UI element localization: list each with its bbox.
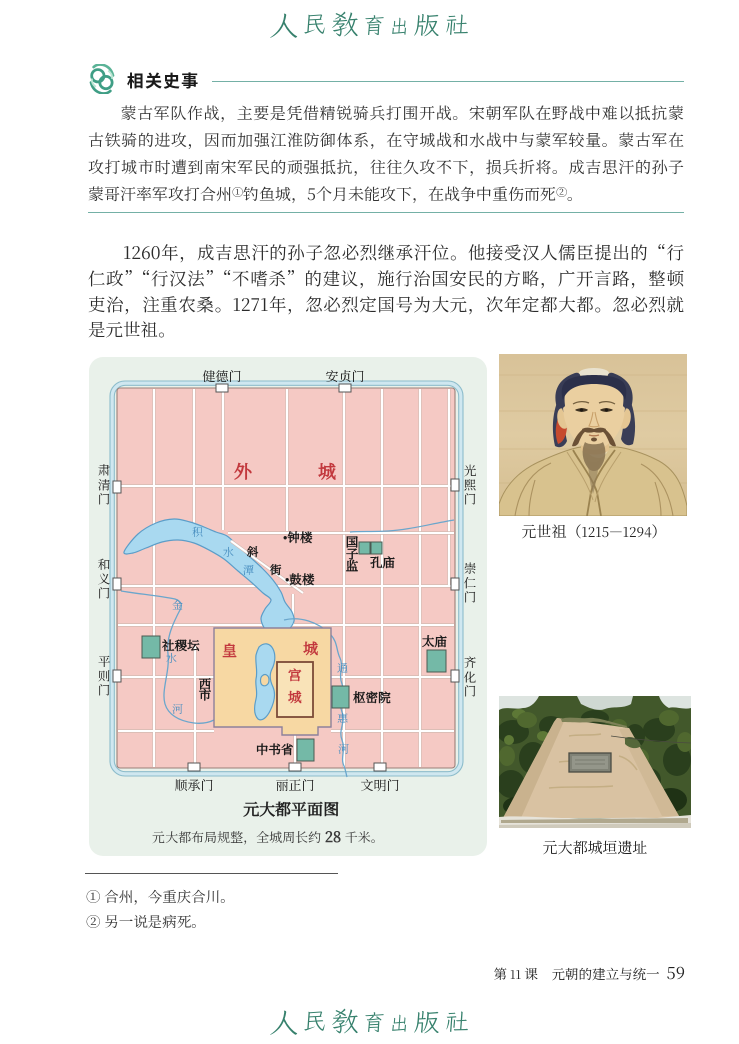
svg-text:健德门: 健德门 <box>202 366 241 385</box>
svg-text:河: 河 <box>338 741 349 757</box>
svg-text:城: 城 <box>288 686 302 706</box>
svg-text:积: 积 <box>192 524 203 540</box>
svg-text:通: 通 <box>337 660 348 676</box>
svg-text:和义门: 和义门 <box>95 557 113 601</box>
svg-text:河: 河 <box>172 701 183 717</box>
svg-text:顺承门: 顺承门 <box>174 775 213 794</box>
svg-text:皇: 皇 <box>222 640 237 661</box>
svg-text:平则门: 平则门 <box>95 654 113 698</box>
svg-text:中书省: 中书省 <box>256 740 294 758</box>
svg-text:文明门: 文明门 <box>360 775 399 794</box>
svg-text:水: 水 <box>166 650 177 666</box>
svg-text:齐化门: 齐化门 <box>461 655 479 699</box>
svg-text:光熙门: 光熙门 <box>461 463 479 507</box>
svg-text:宫: 宫 <box>288 664 302 684</box>
svg-text:水: 水 <box>223 544 234 560</box>
svg-text:西市: 西市 <box>196 677 214 702</box>
svg-text:丽正门: 丽正门 <box>275 775 314 794</box>
svg-text:斜: 斜 <box>246 544 259 560</box>
svg-text:国子监: 国子监 <box>343 535 361 573</box>
svg-text:外: 外 <box>234 458 252 484</box>
svg-text:金: 金 <box>172 597 183 613</box>
svg-text:崇仁门: 崇仁门 <box>461 561 479 605</box>
svg-text:惠: 惠 <box>337 710 348 726</box>
svg-text:城: 城 <box>302 638 318 659</box>
svg-text:太庙: 太庙 <box>422 632 448 650</box>
svg-text:潭: 潭 <box>243 562 254 578</box>
svg-text:街: 街 <box>270 562 282 578</box>
svg-text:安贞门: 安贞门 <box>325 366 364 385</box>
svg-text:肃清门: 肃清门 <box>95 463 113 507</box>
svg-text:•钟楼: •钟楼 <box>283 528 313 546</box>
svg-text:孔庙: 孔庙 <box>370 553 396 571</box>
svg-text:城: 城 <box>318 458 336 484</box>
svg-text:枢密院: 枢密院 <box>352 688 391 706</box>
svg-text:•鼓楼: •鼓楼 <box>285 570 315 588</box>
